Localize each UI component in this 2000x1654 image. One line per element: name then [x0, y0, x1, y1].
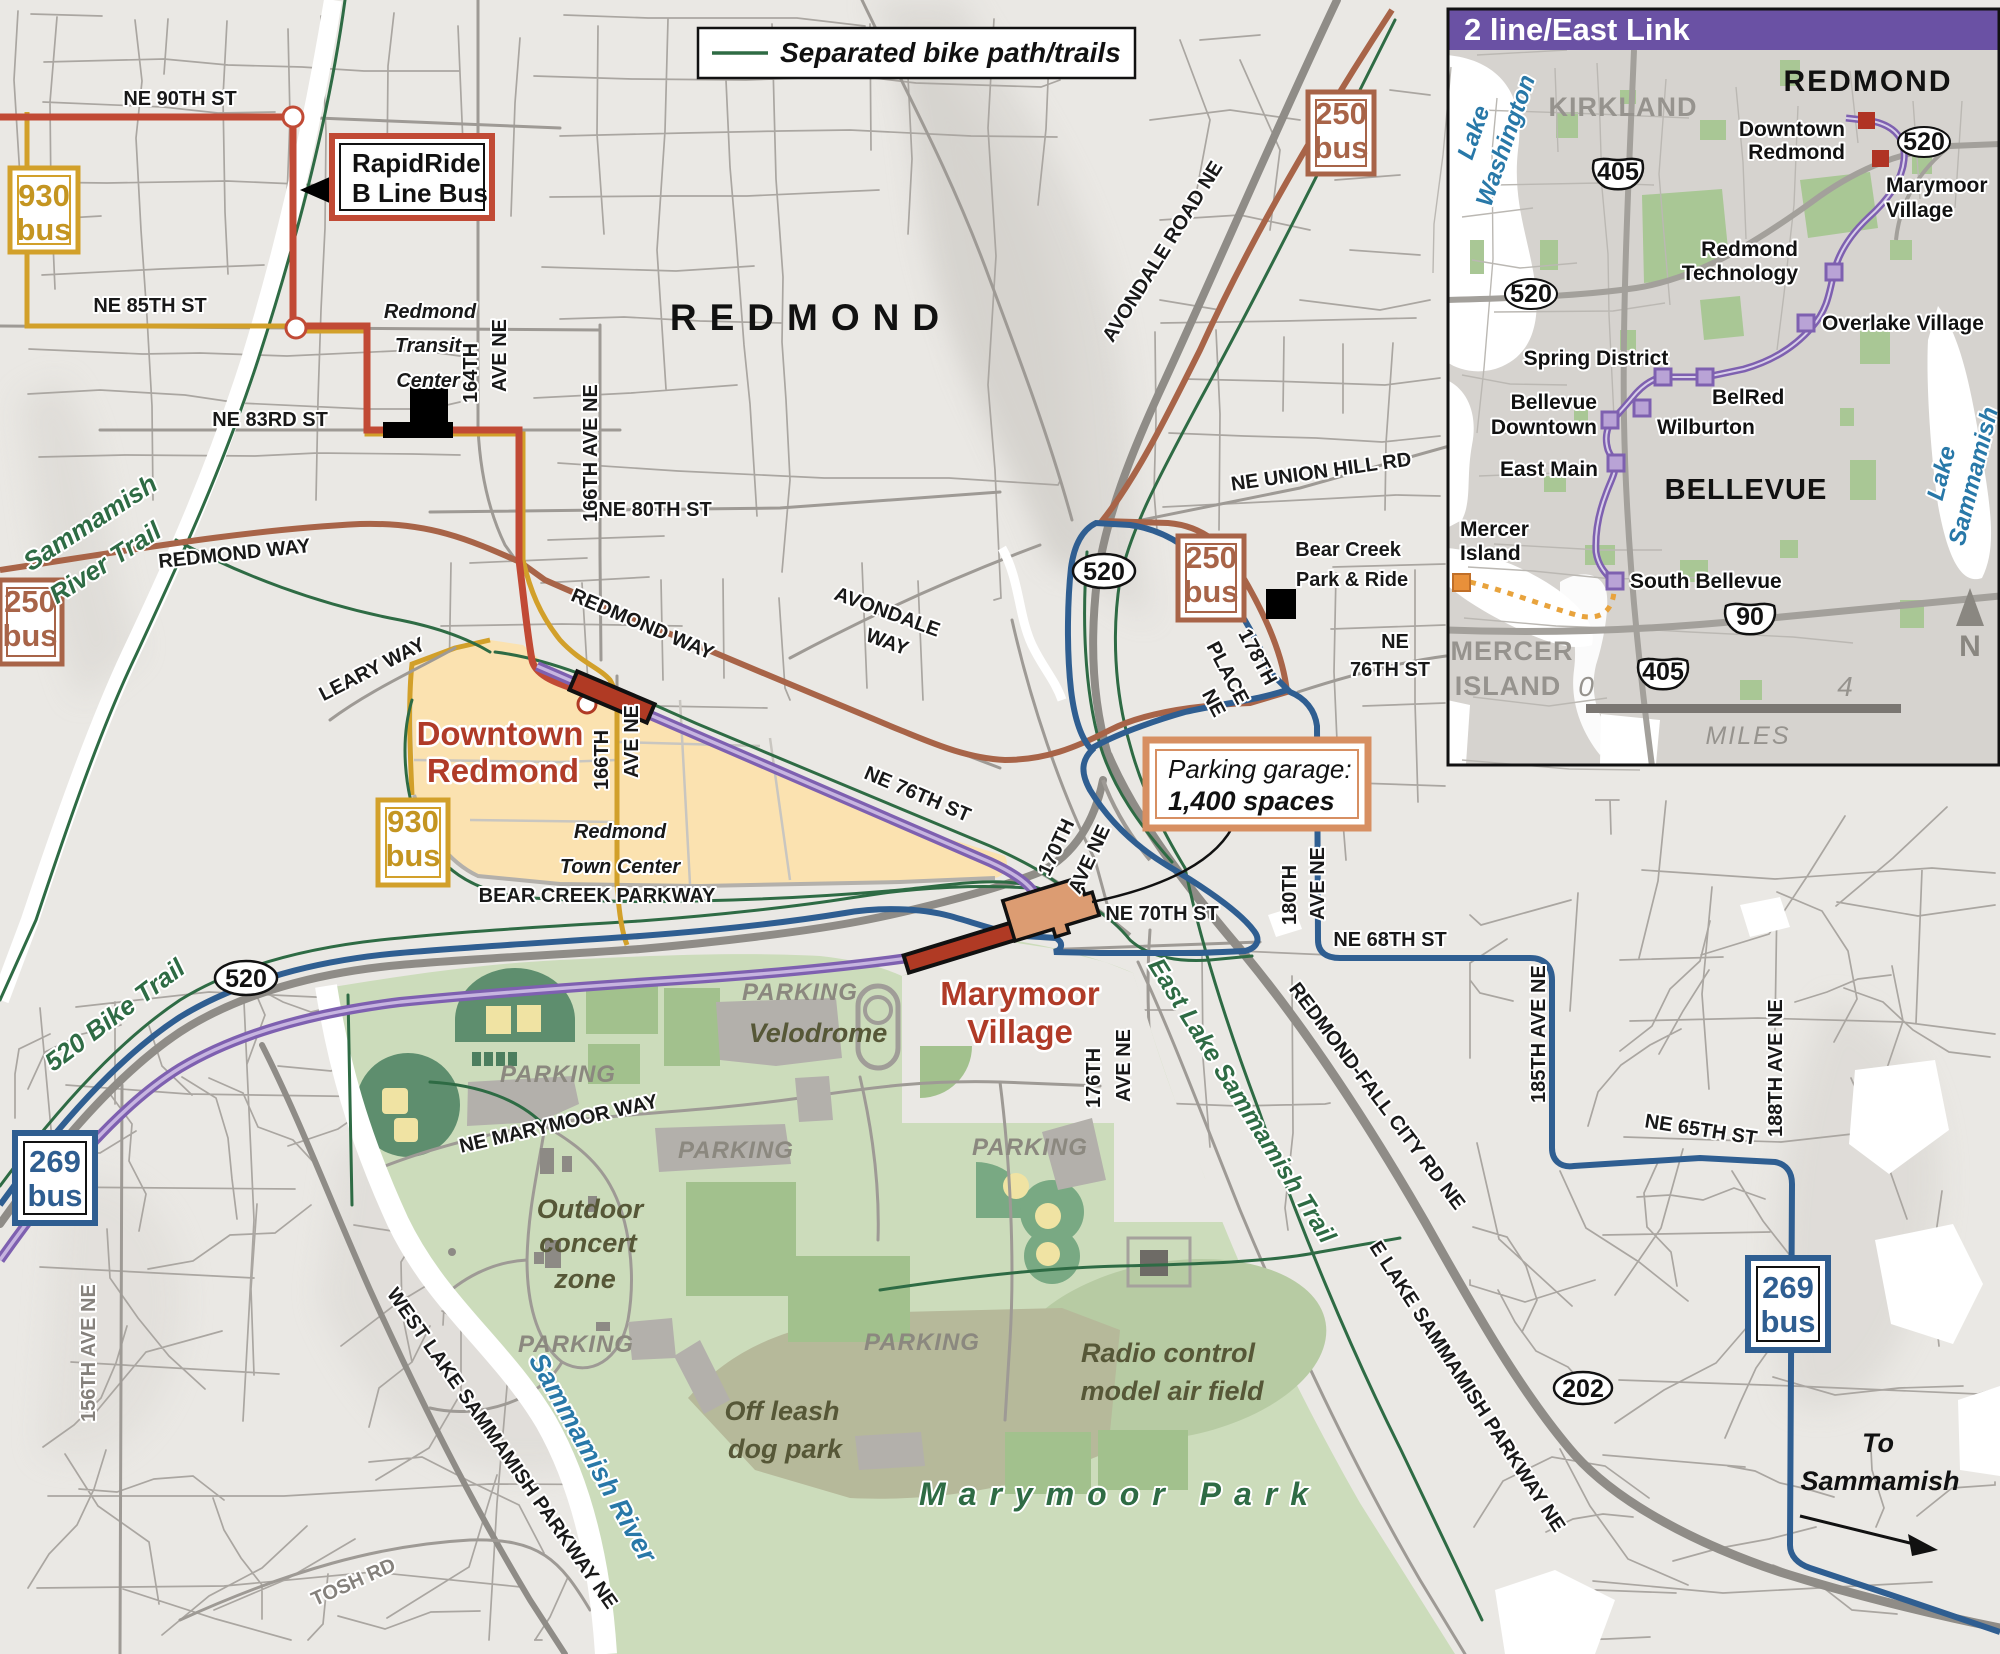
- svg-text:AVE NE: AVE NE: [1113, 1029, 1135, 1102]
- svg-text:B Line Bus: B Line Bus: [352, 178, 488, 208]
- svg-text:Separated bike path/trails: Separated bike path/trails: [780, 37, 1121, 68]
- svg-text:PARKING: PARKING: [864, 1329, 980, 1356]
- svg-text:Center: Center: [396, 370, 461, 392]
- svg-text:Outdoor: Outdoor: [537, 1194, 645, 1224]
- svg-text:Redmond: Redmond: [427, 752, 579, 789]
- svg-text:AVE NE: AVE NE: [621, 705, 643, 778]
- svg-text:NE 70TH ST: NE 70TH ST: [1105, 903, 1218, 925]
- svg-text:250: 250: [1185, 540, 1237, 575]
- svg-text:Redmond: Redmond: [1701, 238, 1798, 261]
- svg-text:Bear Creek: Bear Creek: [1295, 539, 1402, 561]
- svg-text:90: 90: [1736, 603, 1764, 631]
- svg-text:PARKING: PARKING: [972, 1134, 1088, 1161]
- svg-text:Sammamish: Sammamish: [1800, 1466, 1959, 1496]
- svg-text:930: 930: [387, 804, 439, 839]
- svg-text:bus: bus: [1183, 574, 1238, 609]
- svg-text:RapidRide: RapidRide: [352, 148, 481, 178]
- svg-text:Velodrome: Velodrome: [749, 1018, 888, 1048]
- svg-text:concert: concert: [539, 1228, 638, 1258]
- svg-text:Wilburton: Wilburton: [1657, 416, 1755, 439]
- svg-text:520: 520: [225, 965, 267, 993]
- svg-text:REDMOND: REDMOND: [1784, 65, 1953, 98]
- svg-text:Village: Village: [1886, 199, 1953, 222]
- svg-text:Park & Ride: Park & Ride: [1296, 569, 1408, 591]
- svg-text:NE 90TH ST: NE 90TH ST: [123, 88, 236, 110]
- svg-text:176TH: 176TH: [1083, 1048, 1105, 1108]
- svg-text:Redmond: Redmond: [574, 821, 667, 843]
- svg-text:76TH ST: 76TH ST: [1350, 659, 1430, 681]
- svg-text:Parking garage:: Parking garage:: [1168, 754, 1352, 784]
- svg-text:N: N: [1959, 630, 1981, 663]
- svg-text:166TH: 166TH: [591, 730, 613, 790]
- svg-text:model air field: model air field: [1080, 1376, 1264, 1406]
- svg-text:Downtown: Downtown: [1491, 416, 1597, 439]
- svg-text:KIRKLAND: KIRKLAND: [1549, 92, 1698, 122]
- svg-text:Mercer: Mercer: [1460, 518, 1529, 541]
- svg-text:bus: bus: [385, 838, 440, 873]
- svg-text:185TH AVE NE: 185TH AVE NE: [1528, 965, 1550, 1103]
- svg-text:bus: bus: [16, 212, 71, 247]
- svg-text:BELLEVUE: BELLEVUE: [1665, 474, 1828, 506]
- svg-text:0: 0: [1578, 671, 1594, 702]
- svg-text:520: 520: [1903, 128, 1945, 156]
- svg-text:Redmond: Redmond: [384, 301, 477, 323]
- svg-text:180TH: 180TH: [1279, 865, 1301, 925]
- svg-text:PARKING: PARKING: [742, 979, 858, 1006]
- svg-text:AVE NE: AVE NE: [1307, 847, 1329, 920]
- svg-text:405: 405: [1597, 158, 1639, 186]
- svg-text:PARKING: PARKING: [518, 1331, 634, 1358]
- svg-text:405: 405: [1642, 658, 1684, 686]
- svg-text:Town Center: Town Center: [560, 856, 682, 878]
- svg-text:South Bellevue: South Bellevue: [1630, 570, 1782, 593]
- svg-text:269: 269: [29, 1144, 81, 1179]
- svg-text:Village: Village: [967, 1013, 1073, 1050]
- svg-text:Technology: Technology: [1682, 262, 1799, 285]
- svg-text:Radio control: Radio control: [1081, 1338, 1255, 1368]
- svg-text:Overlake Village: Overlake Village: [1822, 312, 1984, 335]
- svg-text:930: 930: [18, 178, 70, 213]
- svg-text:dog park: dog park: [728, 1434, 844, 1464]
- svg-text:NE: NE: [1381, 631, 1409, 653]
- svg-text:NE 68TH ST: NE 68TH ST: [1333, 929, 1446, 951]
- svg-text:Redmond: Redmond: [1748, 141, 1845, 164]
- svg-text:Downtown: Downtown: [417, 715, 584, 752]
- svg-text:Off leash: Off leash: [724, 1396, 839, 1426]
- svg-text:NE 85TH ST: NE 85TH ST: [93, 295, 206, 317]
- svg-text:ISLAND: ISLAND: [1455, 671, 1562, 701]
- svg-text:1,400 spaces: 1,400 spaces: [1168, 786, 1335, 816]
- svg-text:2 line/East Link: 2 line/East Link: [1464, 12, 1690, 47]
- svg-text:NE 83RD ST: NE 83RD ST: [212, 409, 328, 431]
- svg-text:NE 80TH ST: NE 80TH ST: [598, 499, 711, 521]
- svg-text:bus: bus: [1313, 130, 1368, 165]
- svg-text:REDMOND: REDMOND: [670, 297, 952, 338]
- svg-text:MILES: MILES: [1705, 722, 1790, 750]
- svg-text:AVE NE: AVE NE: [489, 319, 511, 392]
- svg-text:Marymoor: Marymoor: [1886, 174, 1988, 197]
- svg-text:Marymoor: Marymoor: [940, 975, 1100, 1012]
- svg-text:156TH AVE NE: 156TH AVE NE: [78, 1284, 100, 1422]
- svg-text:BelRed: BelRed: [1712, 386, 1784, 409]
- svg-text:250: 250: [1315, 96, 1367, 131]
- svg-text:269: 269: [1762, 1270, 1814, 1305]
- svg-text:bus: bus: [27, 1178, 82, 1213]
- svg-text:520: 520: [1510, 280, 1552, 308]
- svg-text:PARKING: PARKING: [500, 1061, 616, 1088]
- svg-text:PARKING: PARKING: [678, 1137, 794, 1164]
- svg-text:164TH: 164TH: [460, 343, 482, 403]
- svg-text:Island: Island: [1460, 542, 1521, 565]
- svg-text:202: 202: [1562, 1375, 1604, 1403]
- svg-text:Transit: Transit: [395, 335, 463, 357]
- svg-text:MERCER: MERCER: [1450, 636, 1573, 666]
- svg-text:Spring District: Spring District: [1524, 347, 1669, 370]
- svg-text:Bellevue: Bellevue: [1511, 391, 1597, 414]
- svg-text:4: 4: [1837, 671, 1853, 702]
- svg-text:East Main: East Main: [1500, 458, 1598, 481]
- svg-text:188TH AVE NE: 188TH AVE NE: [1765, 999, 1787, 1137]
- svg-text:bus: bus: [2, 618, 57, 653]
- svg-text:zone: zone: [553, 1264, 616, 1294]
- svg-text:520: 520: [1083, 558, 1125, 586]
- svg-text:BEAR CREEK PARKWAY: BEAR CREEK PARKWAY: [479, 885, 716, 907]
- svg-text:To: To: [1862, 1428, 1894, 1458]
- svg-text:Downtown: Downtown: [1739, 118, 1845, 141]
- svg-text:Marymoor Park: Marymoor Park: [919, 1476, 1321, 1512]
- svg-text:bus: bus: [1760, 1304, 1815, 1339]
